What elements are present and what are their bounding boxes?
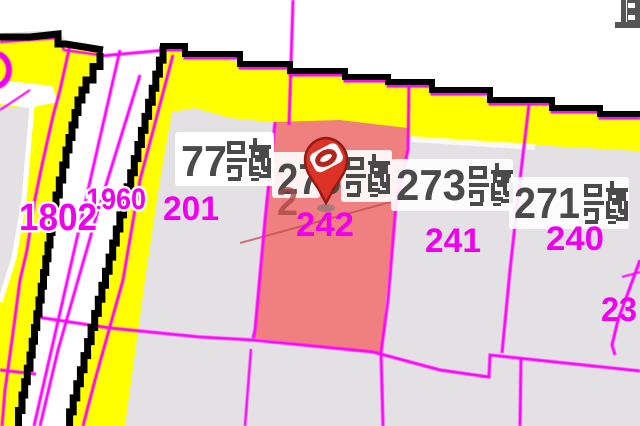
svg-text:241: 241 — [425, 222, 481, 260]
svg-text:273: 273 — [396, 161, 466, 210]
svg-text:23: 23 — [601, 291, 637, 329]
svg-text:77: 77 — [181, 137, 227, 186]
svg-text:201: 201 — [163, 190, 219, 228]
svg-text:2: 2 — [277, 180, 298, 224]
svg-text:1802: 1802 — [19, 197, 97, 239]
svg-text:240: 240 — [546, 220, 604, 258]
